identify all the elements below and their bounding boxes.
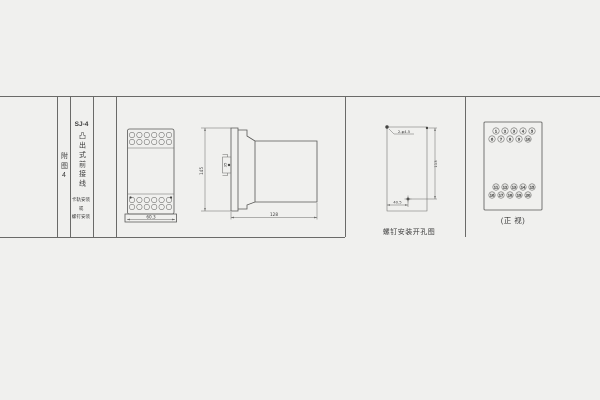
front-view-drawing: 60.3 xyxy=(123,121,181,223)
drawing-sheet: 附图4 SJ-4 凸出式前接线 卡轨安装 或 螺钉安装 60.3 xyxy=(0,0,600,400)
wiring-type-label: 凸出式前接线 xyxy=(77,132,87,189)
mount-note-line: 螺钉安装 xyxy=(72,213,90,221)
terminal-number: 14 xyxy=(521,185,526,189)
terminal-number: 8 xyxy=(509,137,512,141)
mount-note-line: 卡轨安装 xyxy=(72,196,90,204)
figure-number: 附图4 xyxy=(59,152,69,182)
front-width-dimension: 60.3 xyxy=(146,214,156,219)
terminal-group-bottom: 11 12 13 14 15 16 17 18 19 20 xyxy=(489,184,535,198)
clip-dimension: 35 xyxy=(223,162,228,167)
terminal-number: 9 xyxy=(518,137,521,141)
mount-notes: 卡轨安装 或 螺钉安装 xyxy=(71,196,91,222)
terminal-number: 17 xyxy=(499,193,504,197)
titleblock-divider-3 xyxy=(93,96,94,237)
drill-height-dimension: 113 xyxy=(433,160,438,168)
terminal-number: 4 xyxy=(522,129,525,133)
section-divider-2 xyxy=(465,96,466,237)
terminal-number: 13 xyxy=(512,185,517,189)
terminal-number: 10 xyxy=(526,137,531,141)
bottom-border-rule xyxy=(0,237,345,238)
side-view-drawing: 145 35 128 xyxy=(193,113,338,228)
terminal-number: 20 xyxy=(526,193,531,197)
mount-hole xyxy=(385,125,388,128)
top-step xyxy=(238,130,255,141)
bottom-step xyxy=(238,202,255,209)
mount-hole xyxy=(426,127,428,129)
terminal-number: 18 xyxy=(508,193,513,197)
terminal-number: 12 xyxy=(503,185,508,189)
terminal-view-drawing: 1 2 3 4 5 6 7 8 9 10 11 12 13 14 15 16 1… xyxy=(481,118,545,214)
side-depth-dimension: 128 xyxy=(270,212,278,217)
titleblock-divider-4 xyxy=(116,96,117,237)
drill-width-dimension: 40.5 xyxy=(393,200,402,205)
terminal-group-top: 1 2 3 4 5 6 7 8 9 10 xyxy=(489,128,535,142)
terminal-number: 6 xyxy=(491,137,494,141)
side-height-dimension: 145 xyxy=(199,167,204,175)
terminal-number: 3 xyxy=(513,129,515,133)
front-bottom-terminals xyxy=(129,197,171,209)
model-cell: SJ-4 凸出式前接线 卡轨安装 或 螺钉安装 xyxy=(70,97,93,237)
relay-body xyxy=(255,141,317,202)
terminal-view-caption: (正 视) xyxy=(481,215,545,226)
terminal-number: 1 xyxy=(495,129,497,133)
mount-note-line: 或 xyxy=(72,205,90,213)
terminal-number: 11 xyxy=(494,185,499,189)
terminal-number: 15 xyxy=(530,185,535,189)
front-top-terminals xyxy=(129,132,171,144)
figure-number-cell: 附图4 xyxy=(57,97,70,237)
drill-caption: 螺钉安装开孔图 xyxy=(378,227,440,237)
terminal-number: 5 xyxy=(531,129,533,133)
screw-dot xyxy=(129,196,131,198)
terminal-number: 16 xyxy=(490,193,495,197)
terminal-number: 7 xyxy=(500,137,502,141)
front-panel xyxy=(231,128,238,211)
model-label: SJ-4 xyxy=(75,121,89,128)
terminal-number: 19 xyxy=(517,193,522,197)
section-divider-1 xyxy=(345,96,346,237)
rail-clip: 35 xyxy=(223,155,232,176)
screw-dot xyxy=(170,196,172,198)
drill-holes-note: 2-φ4.5 xyxy=(398,129,411,134)
terminal-number: 2 xyxy=(504,129,506,133)
drill-template-drawing: 2-φ4.5 113 40.5 xyxy=(378,118,440,218)
